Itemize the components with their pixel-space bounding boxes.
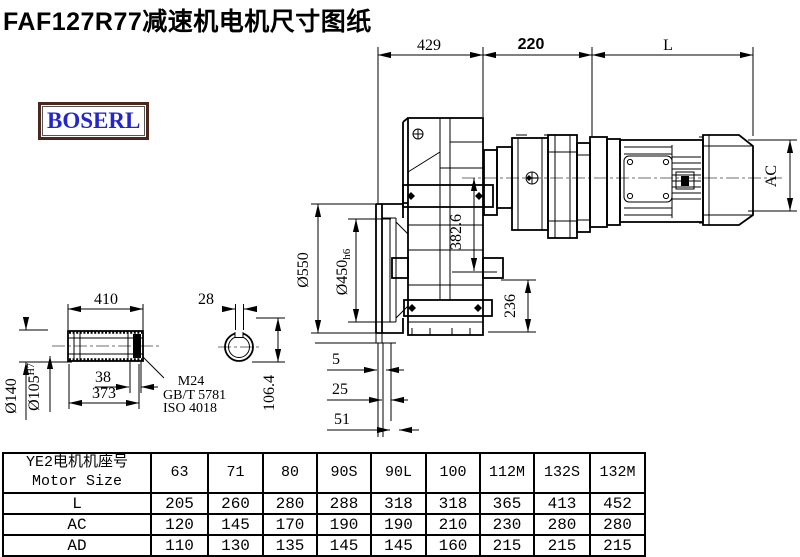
cell: 230	[480, 514, 534, 535]
cell: 318	[371, 493, 426, 514]
header-motor-size: YE2电机机座号 Motor Size	[3, 453, 151, 493]
dim-ac: AC	[763, 165, 780, 187]
col-90L: 90L	[371, 453, 426, 493]
col-112M: 112M	[480, 453, 534, 493]
cell: 280	[534, 514, 590, 535]
dim-5: 5	[332, 351, 340, 368]
note-std2: ISO 4018	[163, 401, 217, 416]
dim-51: 51	[334, 411, 350, 428]
dim-38: 38	[95, 369, 111, 386]
header-en: Motor Size	[4, 473, 150, 492]
dim-pilot: Ø450h6	[334, 248, 353, 295]
dim-220: 220	[518, 36, 545, 53]
cell: 280	[263, 493, 317, 514]
dim-hub-od: Ø140	[3, 378, 20, 414]
dim-L: L	[663, 37, 673, 54]
hollow-shaft-view: 410 Ø140 Ø105H7 38 373 M24 GB/T 5781 ISO…	[3, 291, 226, 420]
motor-outline	[620, 135, 753, 225]
cell: 130	[208, 535, 263, 556]
cell: 190	[371, 514, 426, 535]
cell: 110	[151, 535, 208, 556]
table-row-L: L 205 260 280 288 318 318 365 413 452	[3, 493, 645, 514]
col-132M: 132M	[590, 453, 645, 493]
cell: 280	[590, 514, 645, 535]
table-header-row: YE2电机机座号 Motor Size 63 71 80 90S 90L 100…	[3, 453, 645, 493]
col-80: 80	[263, 453, 317, 493]
cell: 145	[208, 514, 263, 535]
dim-373: 373	[92, 385, 116, 402]
dimension-ac: AC	[748, 140, 797, 211]
cell: 145	[371, 535, 426, 556]
motor-adapter	[484, 135, 620, 238]
row-label: AC	[3, 514, 151, 535]
output-flange	[315, 204, 408, 437]
cell: 215	[590, 535, 645, 556]
dim-236: 236	[502, 294, 519, 318]
cell: 215	[480, 535, 534, 556]
col-63: 63	[151, 453, 208, 493]
col-90S: 90S	[317, 453, 371, 493]
cell: 120	[151, 514, 208, 535]
dimension-offsets: 5 25 51	[327, 351, 419, 430]
dim-429: 429	[417, 37, 441, 54]
cell: 205	[151, 493, 208, 514]
dimension-top: 429 220 L	[378, 36, 753, 203]
page-title: FAF127R77减速机电机尺寸图纸	[3, 2, 372, 38]
dimension-236: 236	[488, 280, 536, 332]
cell: 365	[480, 493, 534, 514]
col-132S: 132S	[534, 453, 590, 493]
row-label: AD	[3, 535, 151, 556]
table-row-AD: AD 110 130 135 145 145 160 215 215 215	[3, 535, 645, 556]
cell: 145	[317, 535, 371, 556]
cell: 170	[263, 514, 317, 535]
dim-106: 106.4	[261, 375, 278, 411]
cell: 318	[426, 493, 480, 514]
motor-size-table: YE2电机机座号 Motor Size 63 71 80 90S 90L 100…	[2, 452, 646, 557]
cell: 413	[534, 493, 590, 514]
cell: 215	[534, 535, 590, 556]
dim-flange-od: Ø550	[295, 252, 312, 288]
col-71: 71	[208, 453, 263, 493]
dim-410: 410	[94, 291, 118, 308]
cell: 260	[208, 493, 263, 514]
header-cn: YE2电机机座号	[4, 454, 150, 473]
note-thread: M24	[178, 374, 204, 389]
brand-logo: BOSERL	[38, 102, 149, 140]
cell: 135	[263, 535, 317, 556]
dim-28: 28	[198, 291, 214, 308]
row-label: L	[3, 493, 151, 514]
table-row-AC: AC 120 145 170 190 190 210 230 280 280	[3, 514, 645, 535]
cell: 190	[317, 514, 371, 535]
dim-25: 25	[332, 381, 348, 398]
cell: 288	[317, 493, 371, 514]
cell: 160	[426, 535, 480, 556]
dim-bore: Ø105H7	[26, 363, 43, 411]
dim-382: 382.6	[448, 214, 465, 250]
cell: 452	[590, 493, 645, 514]
cell: 210	[426, 514, 480, 535]
col-100: 100	[426, 453, 480, 493]
brand-logo-text: BOSERL	[42, 106, 145, 136]
